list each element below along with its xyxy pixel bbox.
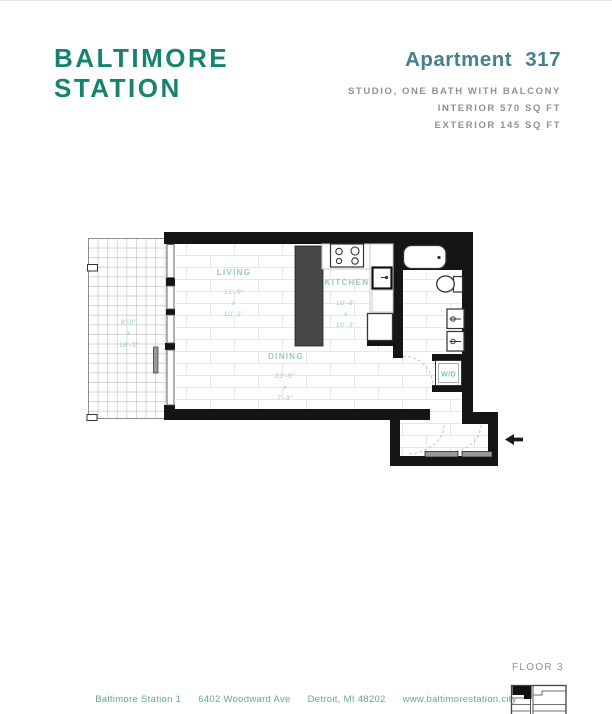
balcony-dim2: 18'-2" xyxy=(119,342,139,349)
fridge-icon xyxy=(368,314,393,341)
living-dim-sep: x xyxy=(232,300,236,307)
footer: Baltimore Station 1 6402 Woodward Ave De… xyxy=(0,693,612,705)
stove-icon xyxy=(331,244,364,267)
dining-dim-sep: x xyxy=(283,384,287,391)
dining-dim2: 7'-3" xyxy=(277,395,293,402)
floor-plan: W/D LIVING 12'-9" x 10'-1" KITCHEN 10'-8… xyxy=(0,1,612,714)
floor-key-label: FLOOR 3 xyxy=(512,662,564,673)
wd-label: W/D xyxy=(441,372,456,379)
balcony-dim1: 8'-0" xyxy=(121,319,137,326)
kitchen-dim-sep: x xyxy=(344,311,348,318)
brochure-page: BALTIMORE STATION Apartment 317 STUDIO, … xyxy=(0,0,612,714)
kitchen-dim2: 10'-1" xyxy=(336,322,356,329)
balcony-grid xyxy=(89,239,168,419)
kitchen-island xyxy=(295,246,323,346)
dining-dim1: 23'-5" xyxy=(275,373,295,380)
kitchen-sink-icon xyxy=(373,268,392,289)
footer-address: 6402 Woodward Ave xyxy=(198,694,290,705)
footer-city: Detroit, MI 48202 xyxy=(308,694,386,705)
footer-website: www.baltimorestation.city xyxy=(403,694,517,705)
bathtub-icon xyxy=(404,246,447,269)
toilet-icon xyxy=(437,276,463,292)
entry-arrow-icon xyxy=(505,434,523,445)
balcony-slider-leaf xyxy=(154,347,159,373)
living-label: LIVING xyxy=(217,268,251,277)
balcony-dim-sep: x xyxy=(127,330,131,337)
balcony-post-bottom xyxy=(87,415,97,421)
living-dim2: 10'-1" xyxy=(224,311,244,318)
washer-dryer: W/D xyxy=(436,361,462,386)
kitchen-cabinet xyxy=(372,290,393,312)
living-dim1: 12'-9" xyxy=(224,289,244,296)
footer-building-name: Baltimore Station 1 xyxy=(95,694,181,705)
balcony-post-top xyxy=(88,265,98,272)
kitchen-label: KITCHEN xyxy=(325,278,370,287)
kitchen-dim1: 10'-8" xyxy=(336,300,356,307)
dining-label: DINING xyxy=(268,352,304,361)
